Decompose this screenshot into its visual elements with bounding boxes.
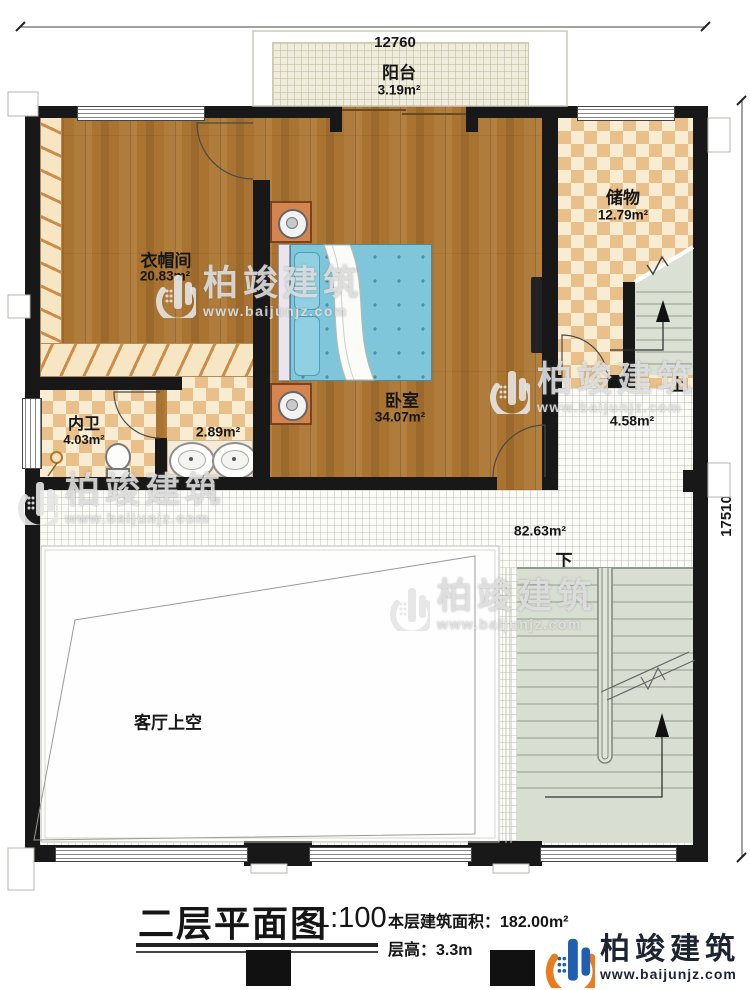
wall-cloak-bedroom [253, 180, 270, 490]
wall-cloak-bottom [25, 377, 182, 390]
title-underline [136, 943, 378, 947]
floor-area-line: 本层建筑面积：182.00m² [388, 908, 569, 932]
toilet [105, 443, 131, 471]
floor-area-label: 本层建筑面积： [388, 914, 500, 931]
dimension-right: 17510 [719, 495, 736, 537]
lamp-icon [278, 391, 308, 421]
wall [203, 106, 342, 118]
room-label-bedroom: 卧室 [385, 393, 419, 412]
wall-column [683, 470, 693, 492]
room-area-landing: 4.58m² [610, 413, 654, 428]
main-staircase [517, 568, 693, 843]
sink [212, 442, 258, 480]
floorplan-page: 12760 17510 阳台 3.19m² 衣帽间 20.83m² 卧室 34.… [0, 0, 750, 990]
room-label-storage: 储物 [606, 190, 640, 209]
sink [169, 442, 215, 480]
wall-nub [466, 106, 478, 132]
shower-head-icon [50, 451, 63, 464]
floor-height-label: 层高： [388, 942, 436, 959]
window [55, 847, 248, 862]
bed-blanket-fold [278, 244, 432, 381]
stair-down-label: 下 [556, 553, 573, 572]
lamp-icon [278, 209, 308, 239]
wall-column [244, 841, 312, 866]
window [540, 847, 677, 862]
room-area-vanity: 2.89m² [196, 424, 240, 439]
brand-url: www.baijunjz.com [600, 966, 740, 982]
dimension-top: 12760 [374, 35, 416, 52]
column-legend-square [246, 950, 291, 986]
room-label-balcony: 阳台 [382, 65, 416, 84]
floor-area-value: 182.00m² [500, 914, 569, 931]
window [77, 106, 205, 121]
cloak-opening-floor [182, 377, 253, 388]
wall-column [468, 841, 542, 866]
brand-logo-icon [541, 934, 595, 988]
wall-storage-bottom [542, 375, 562, 388]
room-area-bedroom: 34.07m² [375, 411, 425, 426]
wall-storage-bottom [608, 375, 635, 388]
storage-floor [558, 118, 693, 388]
column-legend-square [490, 950, 535, 986]
brand-logo: 柏竣建筑 www.baijunjz.com [541, 934, 740, 988]
nightstand [270, 383, 312, 425]
room-area-balcony: 3.19m² [378, 84, 421, 99]
room-area-storage: 12.79m² [598, 209, 648, 224]
room-area-cloakroom: 20.83m² [140, 270, 190, 285]
window [22, 398, 42, 469]
floor-height-line: 层高：3.3m [388, 936, 472, 960]
wall-nub [330, 106, 342, 132]
wall-mid [25, 477, 497, 490]
stair-up-label: 上 [670, 377, 687, 396]
window [309, 847, 472, 862]
wall-left [25, 106, 40, 845]
wall-bath [155, 438, 167, 477]
wall-right [693, 106, 708, 862]
wardrobe-left [40, 115, 62, 345]
room-area-hall: 82.63m² [514, 523, 566, 538]
room-area-bathroom: 4.03m² [63, 433, 104, 447]
window [577, 106, 675, 121]
floor-height-value: 3.3m [436, 942, 472, 959]
plan-scale: 1:100 [314, 902, 387, 935]
nightstand [270, 201, 312, 243]
wall-mid [542, 477, 558, 490]
wall [478, 106, 577, 118]
wardrobe-bottom [40, 343, 255, 377]
void-area [40, 545, 500, 843]
brand-name: 柏竣建筑 [600, 934, 740, 966]
hall-floor-right [558, 388, 693, 490]
bed [278, 244, 432, 381]
room-label-void: 客厅上空 [134, 715, 202, 734]
wall-bedroom-storage [542, 118, 558, 477]
plan-title: 二层平面图 [138, 895, 328, 947]
